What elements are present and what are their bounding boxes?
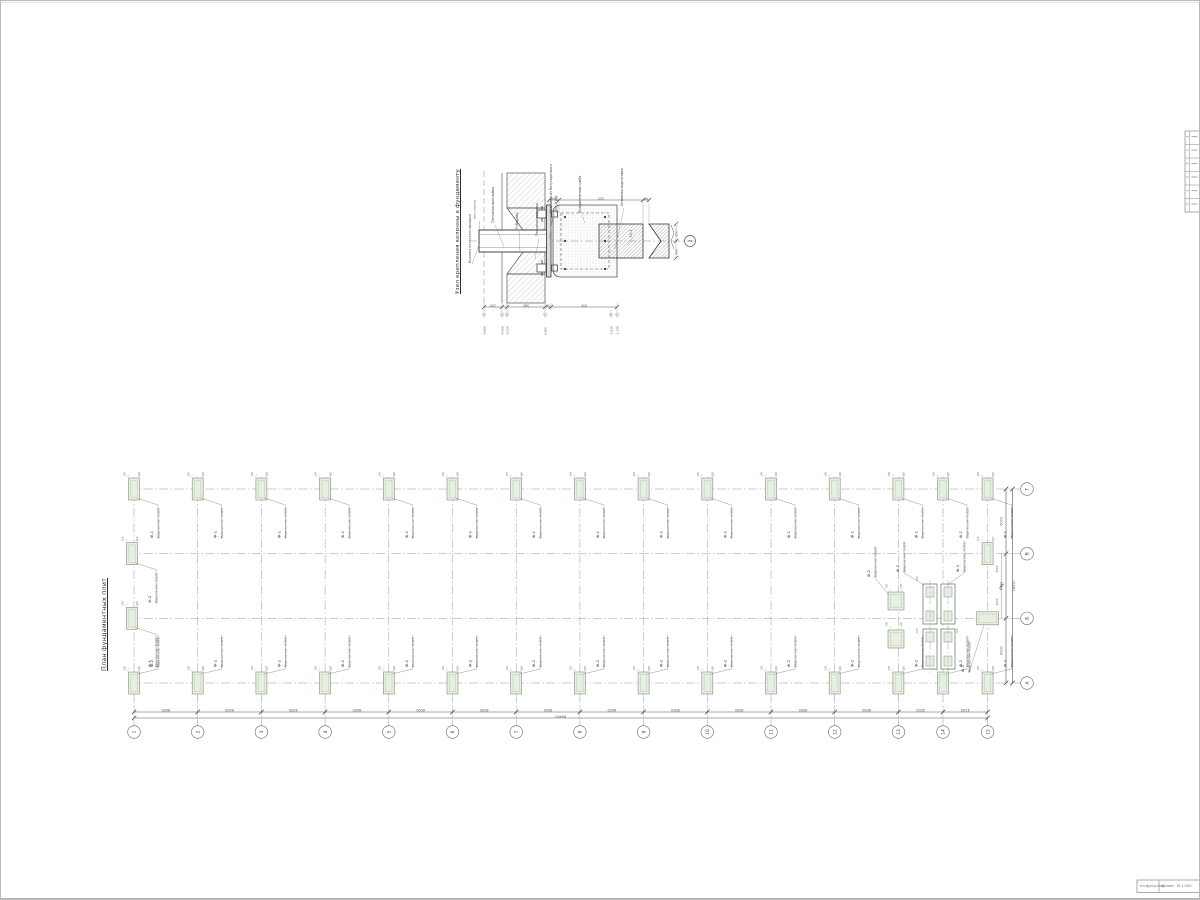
- svg-text:Верх на отм. -3.420: Верх на отм. -3.420: [962, 542, 966, 572]
- svg-text:Верх на отм. -0.620: Верх на отм. -0.620: [857, 637, 861, 667]
- svg-text:300: 300: [315, 665, 318, 670]
- svg-text:500: 500: [956, 628, 959, 633]
- footing: 300300: [824, 665, 842, 694]
- footing: 300300: [977, 536, 995, 565]
- svg-text:Верх на отм. -0.620: Верх на отм. -0.620: [284, 508, 288, 538]
- footing: 300300: [761, 471, 779, 500]
- svg-text:Г: Г: [1025, 487, 1031, 490]
- svg-text:Ф-2: Ф-2: [850, 659, 855, 667]
- footing: 300300: [761, 665, 779, 694]
- svg-text:300: 300: [888, 665, 891, 670]
- svg-text:Верх на отм. -0.620: Верх на отм. -0.620: [347, 637, 351, 667]
- footing: 300300: [315, 471, 333, 500]
- footing-label: Ф-1Верх на отм. -0.620: [201, 498, 224, 539]
- svg-text:300: 300: [633, 665, 636, 670]
- footing: 300300: [886, 621, 904, 648]
- plan-dim-right: 6000600060003000300018000: [995, 487, 1016, 685]
- svg-text:Ф-2: Ф-2: [276, 659, 281, 667]
- footing-pit: [941, 625, 955, 673]
- svg-text:1: 1: [132, 730, 138, 733]
- svg-text:6000: 6000: [416, 708, 425, 712]
- svg-text:Ф-2: Ф-2: [147, 595, 152, 603]
- svg-text:Подливка из безусадочного: Подливка из безусадочного: [549, 164, 553, 213]
- svg-text:Рубероид: Рубероид: [515, 212, 519, 229]
- revision-strip: [1185, 131, 1200, 212]
- svg-text:Гн-1: Гн-1: [629, 230, 633, 237]
- svg-text:6000: 6000: [862, 708, 871, 712]
- svg-text:Верх на отм. -0.620: Верх на отм. -0.620: [666, 508, 670, 538]
- svg-text:Ф-1: Ф-1: [468, 530, 473, 538]
- svg-text:6000: 6000: [353, 708, 362, 712]
- svg-text:Верх на отм. -0.620: Верх на отм. -0.620: [730, 637, 734, 667]
- footing: 300300: [633, 471, 651, 500]
- footing: 300300: [187, 665, 205, 694]
- footing-label: Ф-1Верх на отм. -0.620: [647, 498, 670, 539]
- svg-text:Песчаная прослойка: Песчаная прослойка: [491, 187, 495, 223]
- footing: 300300: [122, 601, 140, 630]
- svg-text:Верх на отм. -0.620: Верх на отм. -0.620: [965, 508, 969, 538]
- footing-label: Ф-1Верх на отм. -0.620: [838, 498, 861, 539]
- svg-text:Верх на отм. -3.420: Верх на отм. -3.420: [902, 542, 906, 572]
- svg-text:300: 300: [251, 665, 254, 670]
- svg-text:300: 300: [824, 665, 827, 670]
- svg-text:Верх на отм. -0.620: Верх на отм. -0.620: [539, 508, 543, 538]
- svg-text:Верх на отм. -0.620: Верх на отм. -0.620: [730, 508, 734, 538]
- footing: 300300: [888, 471, 906, 500]
- svg-text:Б: Б: [1025, 617, 1031, 620]
- svg-text:300: 300: [187, 471, 190, 476]
- svg-text:150: 150: [675, 249, 679, 255]
- svg-text:580: 580: [523, 304, 529, 308]
- svg-text:90: 90: [546, 304, 550, 308]
- footing-label: Ф-1Верх на отм. -0.620: [135, 627, 158, 668]
- svg-text:В: В: [1025, 552, 1031, 555]
- footing: 300300: [251, 471, 269, 500]
- footing-pit: [923, 580, 937, 628]
- footer-stamp-left-text: пл.фунд.dwg: [1140, 884, 1164, 888]
- svg-text:Верх на отм. -0.620: Верх на отм. -0.620: [921, 637, 925, 667]
- svg-text:3000: 3000: [995, 598, 999, 605]
- svg-text:Ф-3: Ф-3: [895, 564, 900, 572]
- footing: 300300: [933, 471, 951, 500]
- svg-text:6000: 6000: [225, 708, 234, 712]
- footing: 300300: [977, 665, 995, 694]
- svg-text:300: 300: [506, 665, 509, 670]
- detail-title: Узел крепления колонны к фундаменту: [455, 169, 461, 294]
- svg-text:300: 300: [124, 665, 127, 670]
- svg-text:Ф-1: Ф-1: [276, 530, 281, 538]
- footing-pit: [923, 625, 937, 673]
- footing: 300300: [124, 471, 142, 500]
- svg-text:10: 10: [705, 729, 711, 735]
- footing-label: Ф-1Верх на отм. -0.620: [137, 498, 160, 539]
- svg-text:300: 300: [900, 583, 903, 588]
- svg-text:500: 500: [916, 576, 919, 581]
- svg-text:6000: 6000: [289, 708, 298, 712]
- footing: 300300: [442, 471, 460, 500]
- drawing-canvas: 3003003003003003003003003003003003003003…: [1, 1, 1200, 900]
- footing-label: Ф-1Верх на отм. -0.620: [774, 498, 797, 539]
- svg-text:Верх на отм. -0.620: Верх на отм. -0.620: [793, 637, 797, 667]
- svg-text:300: 300: [761, 471, 764, 476]
- svg-text:4200: 4200: [916, 708, 925, 712]
- plan-footings: 3003003003003003003003003003003003003003…: [122, 471, 999, 694]
- svg-text:Ф-2: Ф-2: [404, 659, 409, 667]
- svg-text:Ф-1: Ф-1: [659, 530, 664, 538]
- svg-text:3: 3: [259, 730, 265, 733]
- footing-label: Ф-1Верх на отм. -0.620: [946, 498, 969, 539]
- svg-text:300: 300: [824, 471, 827, 476]
- svg-text:6: 6: [450, 730, 456, 733]
- svg-text:12: 12: [832, 729, 838, 735]
- svg-text:300: 300: [886, 621, 889, 626]
- svg-text:Верх на отм. -0.620: Верх на отм. -0.620: [539, 637, 543, 667]
- svg-text:Бетонная подготовка: Бетонная подготовка: [620, 168, 624, 206]
- footing: [977, 612, 999, 625]
- svg-text:Ф-2: Ф-2: [913, 659, 918, 667]
- svg-text:Колонна из гнутого профиля: Колонна из гнутого профиля: [468, 214, 472, 263]
- svg-text:Ф-1: Ф-1: [913, 530, 918, 538]
- svg-text:Ф-2: Ф-2: [468, 659, 473, 667]
- svg-text:Верх на отм. -0.620: Верх на отм. -0.620: [602, 637, 606, 667]
- svg-text:6000: 6000: [671, 708, 680, 712]
- svg-text:Ф-2: Ф-2: [960, 664, 965, 672]
- footing-label: Ф-1Верх на отм. -0.620: [264, 498, 287, 539]
- svg-text:80400: 80400: [555, 714, 566, 718]
- svg-text:Песчаная подушка: Песчаная подушка: [535, 203, 539, 236]
- footing-label: Ф-1Верх на отм. -0.620: [328, 498, 351, 539]
- svg-text:300: 300: [187, 665, 190, 670]
- svg-text:Ф-1: Ф-1: [595, 530, 600, 538]
- svg-text:Ф-2: Ф-2: [340, 659, 345, 667]
- svg-text:11: 11: [769, 729, 775, 735]
- footing-label: Ф-1Верх на отм. -0.620: [710, 498, 733, 539]
- svg-text:Верх на отм. -0.620: Верх на отм. -0.620: [475, 637, 479, 667]
- svg-text:300: 300: [442, 471, 445, 476]
- svg-text:Верх на отм. -0.620: Верх на отм. -0.620: [284, 637, 288, 667]
- svg-text:9: 9: [641, 730, 647, 733]
- drawing-sheet: 3003003003003003003003003003003003003003…: [0, 0, 1200, 900]
- svg-text:300: 300: [570, 471, 573, 476]
- footing: 300300: [977, 471, 995, 500]
- svg-text:14: 14: [941, 729, 947, 735]
- svg-text:Верх на отм. -0.620: Верх на отм. -0.620: [220, 508, 224, 538]
- svg-text:Ф-1: Ф-1: [531, 530, 536, 538]
- footing-label: Ф-3Верх на отм. -3.420: [947, 541, 966, 585]
- svg-text:300: 300: [933, 471, 936, 476]
- svg-text:950: 950: [581, 304, 587, 308]
- svg-text:6000: 6000: [999, 517, 1003, 526]
- svg-text:Ф-2: Ф-2: [866, 569, 871, 577]
- svg-text:150: 150: [675, 231, 679, 237]
- svg-text:Верх на отм. -0.620: Верх на отм. -0.620: [411, 508, 415, 538]
- svg-text:6000: 6000: [607, 708, 616, 712]
- svg-text:300: 300: [977, 471, 980, 476]
- footing: 300300: [378, 665, 396, 694]
- svg-text:300: 300: [633, 471, 636, 476]
- svg-text:Ф-2: Ф-2: [595, 659, 600, 667]
- svg-text:Ф-2: Ф-2: [1003, 659, 1008, 667]
- svg-text:Ф-2: Ф-2: [213, 659, 218, 667]
- footing: 300300: [570, 665, 588, 694]
- svg-text:Верх на отм. -0.620: Верх на отм. -0.620: [1010, 508, 1014, 538]
- svg-text:6000: 6000: [480, 708, 489, 712]
- svg-text:300: 300: [378, 471, 381, 476]
- svg-text:Ф-1: Ф-1: [850, 530, 855, 538]
- svg-text:0.000: 0.000: [543, 327, 547, 335]
- footing: 300300: [122, 536, 140, 565]
- svg-text:Верх на отм. -0.620: Верх на отм. -0.620: [347, 508, 351, 538]
- svg-text:6000: 6000: [799, 708, 808, 712]
- svg-text:Ф-2: Ф-2: [659, 659, 664, 667]
- footing: 300300: [886, 583, 904, 610]
- svg-text:8: 8: [578, 730, 584, 733]
- footing: 300300: [824, 471, 842, 500]
- svg-text:Низ колонны: Низ колонны: [473, 200, 477, 219]
- svg-text:Ф-3: Ф-3: [955, 564, 960, 572]
- svg-text:Верх на отм. -0.620: Верх на отм. -0.620: [793, 508, 797, 538]
- svg-text:3000: 3000: [995, 565, 999, 572]
- footing: 300300: [697, 665, 715, 694]
- svg-text:Верх на отм. -0.620: Верх на отм. -0.620: [154, 638, 158, 668]
- detail-drawing: 150150210092590: [469, 171, 697, 304]
- footing-label: Ф-3Верх на отм. -3.420: [895, 541, 924, 585]
- svg-text:Ф-1: Ф-1: [404, 530, 409, 538]
- svg-text:90: 90: [644, 197, 648, 201]
- svg-text:300: 300: [886, 583, 889, 588]
- svg-text:Ф-1: Ф-1: [147, 660, 152, 668]
- svg-text:Ф-1: Ф-1: [213, 530, 218, 538]
- plan-axis-bubbles-right: ГВБА: [1015, 483, 1034, 690]
- svg-text:Ф-1: Ф-1: [722, 530, 727, 538]
- svg-text:300: 300: [506, 471, 509, 476]
- footing-label: Ф-2Верх на отм. -0.620: [135, 563, 158, 604]
- svg-text:2: 2: [195, 730, 201, 733]
- footing-label: Ф-1Верх на отм. -0.620: [392, 498, 415, 539]
- footing: 300300: [124, 665, 142, 694]
- svg-text:Верх на отм. -0.620: Верх на отм. -0.620: [666, 637, 670, 667]
- svg-text:300: 300: [888, 471, 891, 476]
- svg-text:ЦПС М300: ЦПС М300: [555, 195, 559, 213]
- svg-text:Ф-2: Ф-2: [722, 659, 727, 667]
- svg-text:Верх на отм. -0.620: Верх на отм. -0.620: [857, 508, 861, 538]
- svg-text:300: 300: [977, 536, 980, 541]
- svg-text:Верх на отм. -0.620: Верх на отм. -0.620: [154, 573, 158, 603]
- svg-text:Верх на отм. -0.620: Верх на отм. -0.620: [873, 547, 877, 577]
- svg-text:6000: 6000: [999, 646, 1003, 655]
- svg-text:6000: 6000: [735, 708, 744, 712]
- footing-label: Ф-1Верх на отм. -0.620: [519, 498, 542, 539]
- svg-text:Фундаментная тумба: Фундаментная тумба: [578, 176, 582, 213]
- footing: 300300: [506, 471, 524, 500]
- svg-text:Верх на отм. -0.620: Верх на отм. -0.620: [967, 642, 971, 672]
- svg-text:300: 300: [124, 471, 127, 476]
- footing-label: Ф-1Верх на отм. -0.620: [901, 498, 924, 539]
- plan-axis-bubbles-bottom: 123456789101112131415: [128, 720, 994, 738]
- svg-text:18000: 18000: [1012, 581, 1016, 592]
- svg-text:300: 300: [761, 665, 764, 670]
- svg-text:6000: 6000: [544, 708, 553, 712]
- svg-text:300: 300: [122, 601, 125, 606]
- footing-label: Ф-1Верх на отм. -0.620: [456, 498, 479, 539]
- svg-text:13: 13: [896, 729, 902, 735]
- footing: 300300: [251, 665, 269, 694]
- svg-text:6000: 6000: [162, 708, 171, 712]
- footing: 300300: [570, 471, 588, 500]
- svg-text:5: 5: [387, 730, 393, 733]
- footing: 300300: [888, 665, 906, 694]
- footing: 300300: [697, 471, 715, 500]
- plan-dim-bottom: 6000600060006000600060006000600060006000…: [132, 706, 990, 720]
- svg-text:А: А: [1025, 681, 1031, 684]
- footing: 300300: [378, 471, 396, 500]
- footing-label: Ф-2Верх на отм. -0.620: [960, 625, 984, 673]
- svg-text:300: 300: [697, 665, 700, 670]
- svg-text:-1.150: -1.150: [615, 326, 619, 335]
- svg-text:15: 15: [985, 729, 991, 735]
- svg-text:300: 300: [697, 471, 700, 476]
- footing: 300300: [315, 665, 333, 694]
- svg-text:300: 300: [900, 621, 903, 626]
- footing: 300300: [506, 665, 524, 694]
- svg-text:-0.600: -0.600: [482, 326, 486, 335]
- svg-text:-1.020: -1.020: [609, 326, 613, 335]
- svg-text:4200: 4200: [961, 708, 970, 712]
- svg-text:Ф-1: Ф-1: [340, 530, 345, 538]
- svg-text:925: 925: [598, 197, 604, 201]
- detail-dims-bottom: 35058090950-0.600-0.450-0.1500.000-1.020…: [482, 303, 619, 335]
- footing-label: Ф-1Верх на отм. -0.620: [583, 498, 606, 539]
- svg-text:500: 500: [916, 628, 919, 633]
- svg-text:300: 300: [378, 665, 381, 670]
- footing: 300300: [633, 665, 651, 694]
- footing-pit: [941, 580, 955, 628]
- svg-text:Верх на отм. -0.620: Верх на отм. -0.620: [602, 508, 606, 538]
- svg-text:300: 300: [251, 471, 254, 476]
- svg-text:4: 4: [323, 730, 329, 733]
- svg-text:300: 300: [442, 665, 445, 670]
- svg-text:7: 7: [514, 730, 520, 733]
- svg-text:-0.150: -0.150: [505, 326, 509, 335]
- svg-text:Ф-2: Ф-2: [531, 659, 536, 667]
- svg-text:Верх на отм. -0.620: Верх на отм. -0.620: [220, 637, 224, 667]
- footing: 300300: [933, 665, 951, 694]
- svg-text:300: 300: [315, 471, 318, 476]
- svg-text:Ф-1: Ф-1: [149, 530, 154, 538]
- svg-text:350: 350: [490, 304, 496, 308]
- svg-text:Верх на отм. -0.620: Верх на отм. -0.620: [475, 508, 479, 538]
- footer-stamp-right-text: Копия · М 1:100: [1162, 884, 1192, 888]
- svg-text:300: 300: [977, 665, 980, 670]
- svg-text:-0.450: -0.450: [500, 326, 504, 335]
- svg-text:Верх на отм. -0.620: Верх на отм. -0.620: [921, 508, 925, 538]
- svg-text:300: 300: [570, 665, 573, 670]
- svg-text:Ф-1: Ф-1: [1003, 530, 1008, 538]
- svg-text:300: 300: [122, 536, 125, 541]
- plan-title: План фундаментных плит: [100, 578, 108, 671]
- svg-text:Верх на отм. -0.620: Верх на отм. -0.620: [156, 508, 160, 538]
- svg-text:Ф-1: Ф-1: [958, 530, 963, 538]
- svg-text:2: 2: [688, 239, 693, 242]
- svg-text:Ф-1: Ф-1: [786, 530, 791, 538]
- svg-text:Ф-2: Ф-2: [786, 659, 791, 667]
- footing: 300300: [187, 471, 205, 500]
- footing: 300300: [442, 665, 460, 694]
- svg-text:Верх на отм. -0.620: Верх на отм. -0.620: [411, 637, 415, 667]
- footing-labels: Ф-1Верх на отм. -0.620Ф-1Верх на отм. -0…: [135, 498, 1014, 674]
- svg-text:Верх на отм. -0.620: Верх на отм. -0.620: [1010, 637, 1014, 667]
